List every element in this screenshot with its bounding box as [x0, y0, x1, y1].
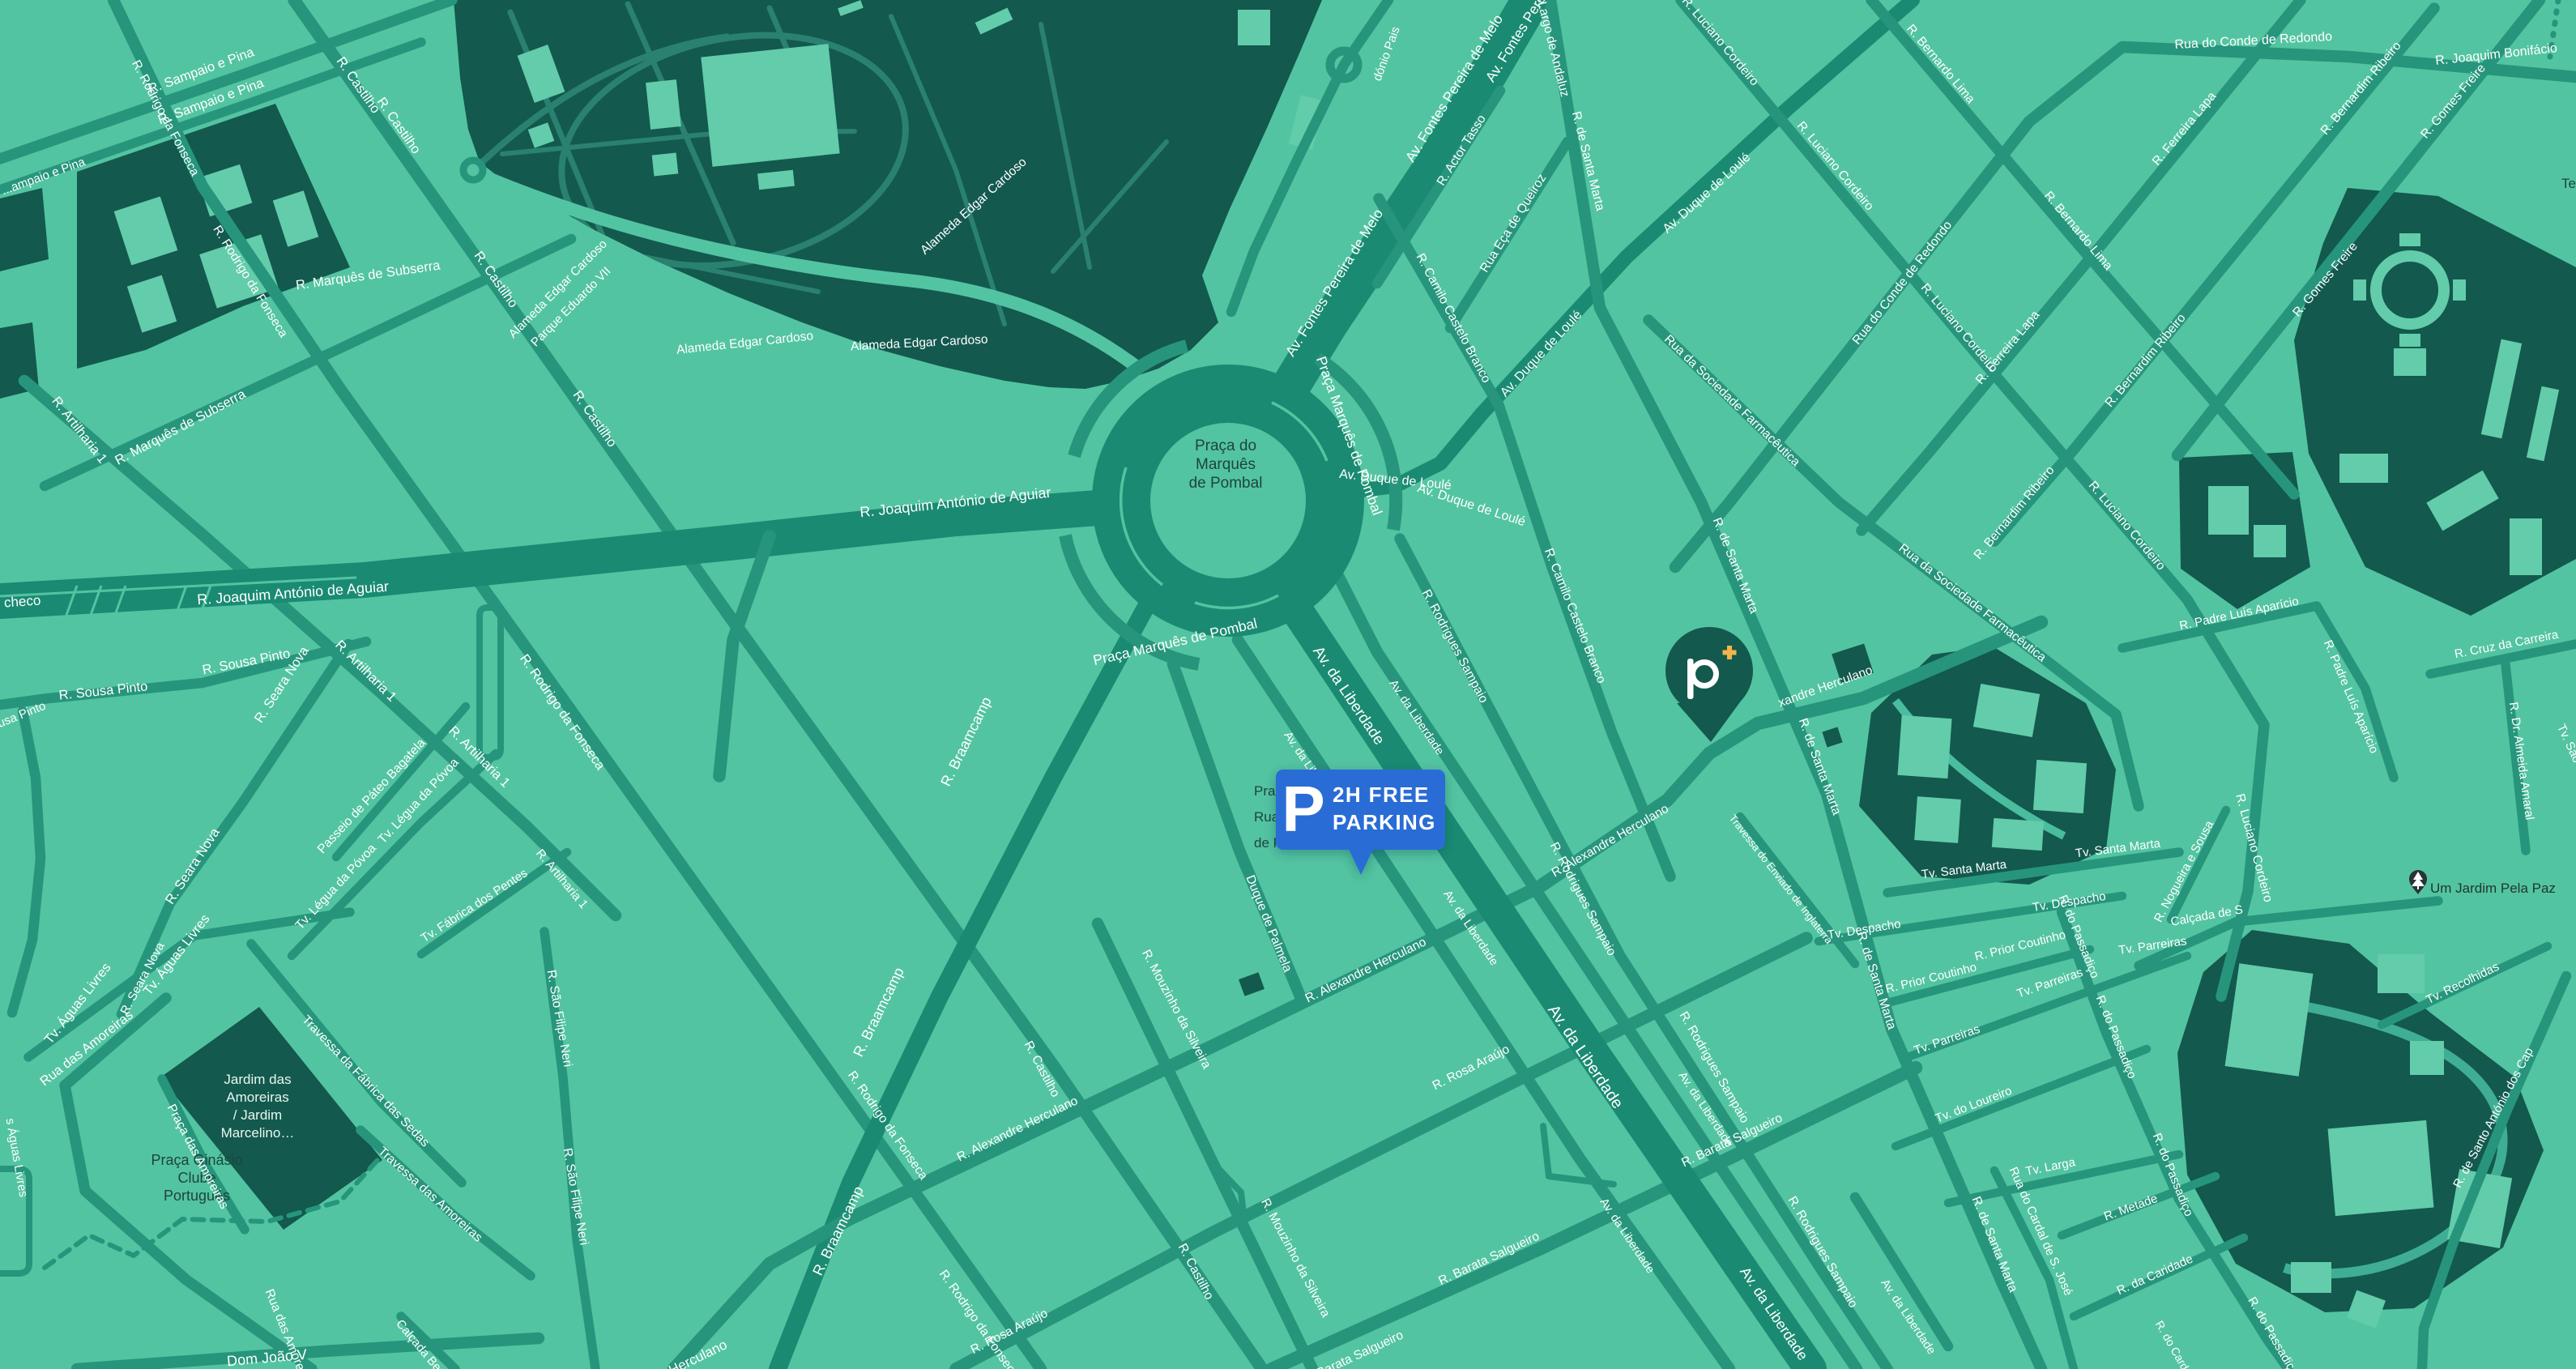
svg-text:2H FREE: 2H FREE: [1333, 783, 1430, 807]
svg-text:PARKING: PARKING: [1333, 810, 1436, 834]
svg-text:Praça do: Praça do: [1195, 437, 1256, 454]
svg-text:Teres: Teres: [2561, 176, 2576, 191]
svg-text:Um Jardim Pela Paz: Um Jardim Pela Paz: [2430, 881, 2556, 896]
svg-text:P: P: [1282, 773, 1324, 845]
svg-text:Jardim das: Jardim das: [224, 1072, 291, 1087]
svg-text:checo: checo: [3, 592, 41, 610]
svg-text:Marquês: Marquês: [1196, 456, 1256, 473]
svg-text:de Pombal: de Pombal: [1189, 475, 1263, 492]
svg-text:Marcelino…: Marcelino…: [221, 1125, 295, 1141]
svg-text:Amoreiras: Amoreiras: [226, 1090, 288, 1105]
svg-text:/ Jardim: / Jardim: [233, 1107, 282, 1123]
